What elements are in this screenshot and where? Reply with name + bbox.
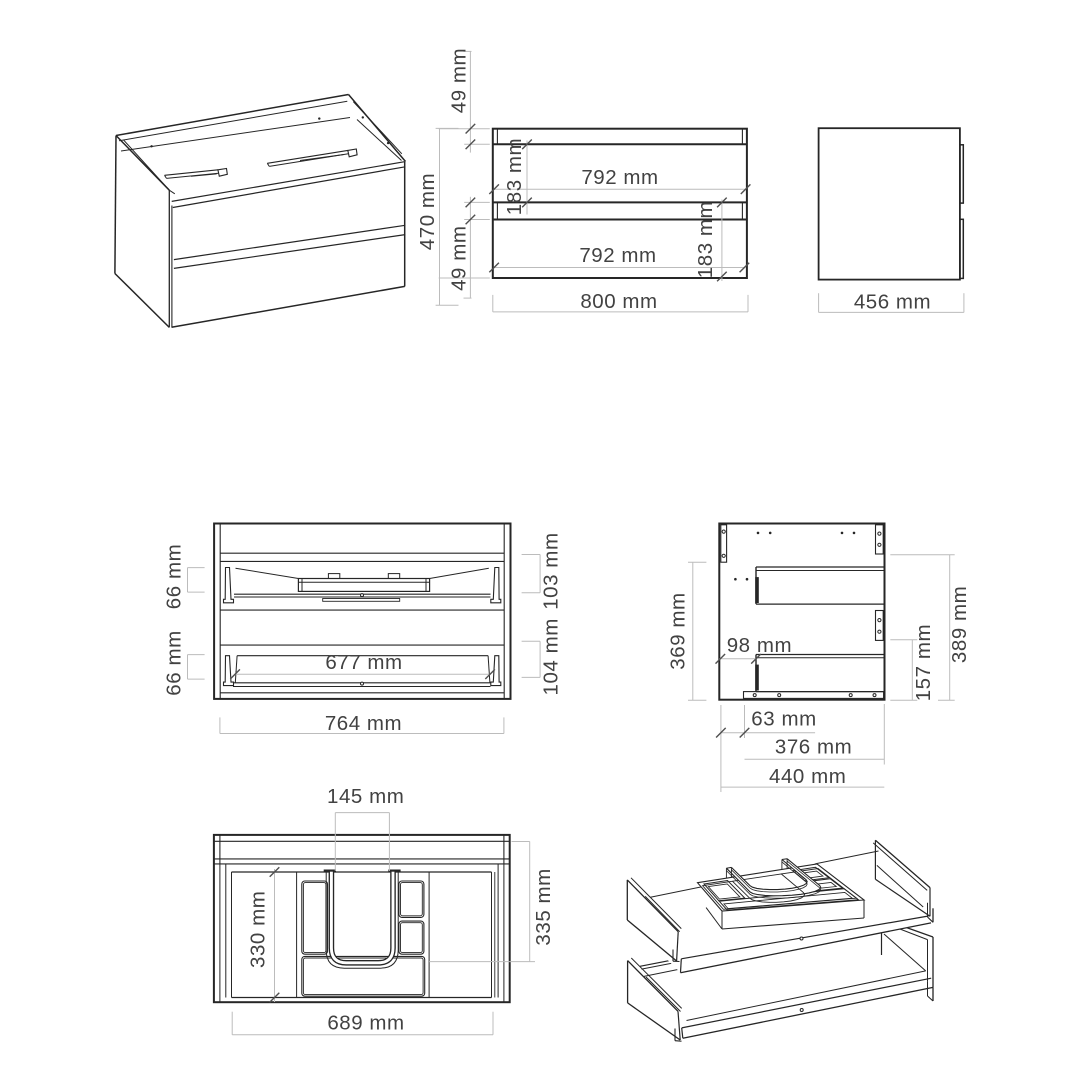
svg-text:470 mm: 470 mm bbox=[416, 173, 439, 250]
svg-text:689 mm: 689 mm bbox=[327, 1012, 404, 1035]
svg-text:157 mm: 157 mm bbox=[912, 624, 935, 701]
svg-text:456 mm: 456 mm bbox=[854, 291, 931, 314]
svg-text:440 mm: 440 mm bbox=[769, 765, 846, 788]
svg-text:376 mm: 376 mm bbox=[775, 736, 852, 759]
svg-text:800 mm: 800 mm bbox=[580, 290, 657, 313]
svg-text:183 mm: 183 mm bbox=[694, 201, 717, 278]
svg-text:792 mm: 792 mm bbox=[581, 166, 658, 189]
svg-text:330 mm: 330 mm bbox=[247, 891, 270, 968]
svg-text:49 mm: 49 mm bbox=[448, 48, 471, 113]
svg-text:66 mm: 66 mm bbox=[163, 630, 186, 695]
svg-text:335 mm: 335 mm bbox=[532, 868, 555, 945]
svg-text:104 mm: 104 mm bbox=[540, 618, 563, 695]
svg-text:792 mm: 792 mm bbox=[579, 244, 656, 267]
svg-text:764 mm: 764 mm bbox=[325, 712, 402, 735]
svg-text:49 mm: 49 mm bbox=[448, 225, 471, 290]
svg-text:183 mm: 183 mm bbox=[503, 138, 526, 215]
svg-text:389 mm: 389 mm bbox=[948, 586, 971, 663]
svg-text:677 mm: 677 mm bbox=[325, 651, 402, 674]
svg-text:98 mm: 98 mm bbox=[727, 634, 792, 657]
svg-text:145 mm: 145 mm bbox=[327, 785, 404, 808]
svg-text:103 mm: 103 mm bbox=[540, 532, 563, 609]
svg-text:369 mm: 369 mm bbox=[667, 592, 690, 669]
svg-text:66 mm: 66 mm bbox=[163, 544, 186, 609]
svg-text:63 mm: 63 mm bbox=[751, 708, 816, 731]
